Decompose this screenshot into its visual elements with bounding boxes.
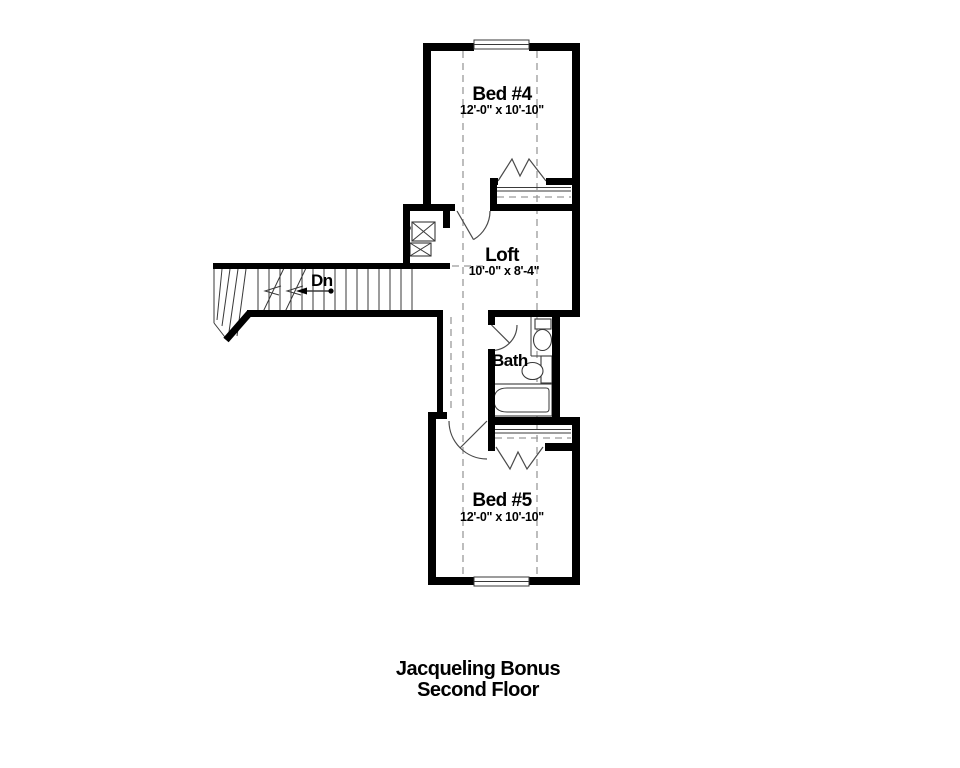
bed5-bottom-wall-right <box>529 577 580 585</box>
bed4-closet-bottom-wall <box>490 204 580 211</box>
bed4-closet-bifold-door <box>498 159 546 181</box>
plan-title-line2: Second Floor <box>417 679 540 701</box>
bath-right-wall <box>552 317 560 425</box>
floor-plan-canvas: Dn <box>0 0 960 768</box>
bath-top-wall <box>488 310 580 317</box>
bed5-closet-left-wall <box>488 417 495 451</box>
stair-top-wall <box>213 263 450 269</box>
bed4-dims: 12'-0" x 10'-10" <box>460 103 544 117</box>
bath-label: Bath <box>492 351 528 370</box>
hall-left-wall <box>437 310 443 417</box>
bed4-window <box>474 40 529 49</box>
bed5-closet-front-wall <box>545 443 572 451</box>
bath-door <box>492 325 518 351</box>
tub-surround <box>489 384 552 416</box>
bed4-closet-front-wall <box>546 178 580 185</box>
bed5-right-wall <box>572 417 580 585</box>
laundry-closet <box>406 222 435 256</box>
bed5-left-wall <box>428 412 436 585</box>
bed4-label: Bed #4 <box>472 84 532 105</box>
stairs-down-label: Dn <box>311 271 333 290</box>
toilet-bowl <box>534 330 552 351</box>
plan-title-line1: Jacqueling Bonus <box>396 658 561 680</box>
bed5-door <box>449 421 487 459</box>
stairs: Dn <box>214 266 412 341</box>
bed4-door <box>457 211 490 240</box>
loft-dims: 10'-0" x 8'-4" <box>469 264 540 278</box>
bed5-bottom-wall-left <box>428 577 474 585</box>
floor-plan-page: Dn <box>0 0 960 768</box>
bed5-label: Bed #5 <box>472 490 532 511</box>
laundry-right-stub <box>443 211 450 228</box>
bath-bottom-wall <box>488 417 580 425</box>
bed5-closet-bifold-door <box>496 447 543 469</box>
bed4-bottom-wall <box>403 204 455 211</box>
laundry-left-wall <box>403 204 410 269</box>
bed5-window <box>474 577 529 586</box>
bed5-dims: 12'-0" x 10'-10" <box>460 510 544 524</box>
toilet-tank <box>535 319 551 329</box>
labels: Bed #4 12'-0" x 10'-10" Loft 10'-0" x 8'… <box>460 84 544 524</box>
loft-label: Loft <box>485 245 520 266</box>
bath-left-wall-upper <box>488 310 495 325</box>
stair-bottom-wall <box>247 310 443 317</box>
title-block: Jacqueling Bonus Second Floor <box>396 658 561 701</box>
bed4-left-wall <box>423 43 431 211</box>
